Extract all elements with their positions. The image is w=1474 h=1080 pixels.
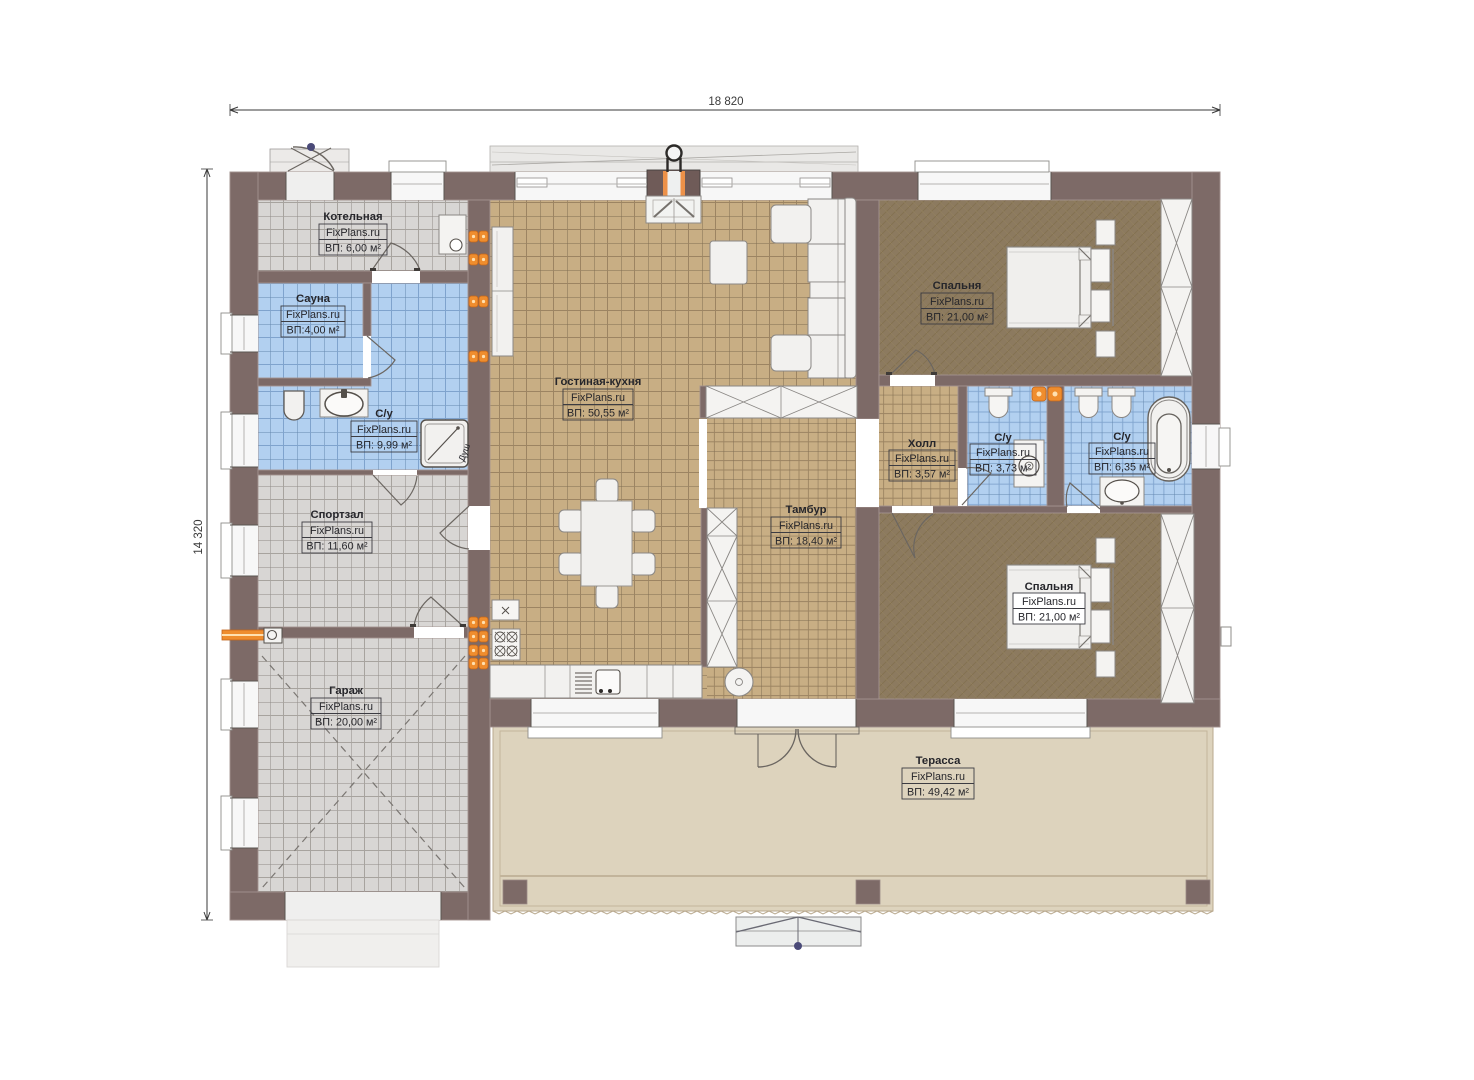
svg-text:FixPlans.ru: FixPlans.ru [895,453,949,465]
svg-text:ВП: 9,99 м²: ВП: 9,99 м² [356,440,412,452]
svg-text:18 820: 18 820 [708,96,743,108]
svg-text:Гостиная-кухня: Гостиная-кухня [555,376,642,388]
svg-text:FixPlans.ru: FixPlans.ru [976,447,1030,459]
svg-text:Гараж: Гараж [329,685,364,697]
svg-text:Спальня: Спальня [933,280,982,292]
svg-text:Холл: Холл [908,438,936,450]
svg-text:Тамбур: Тамбур [786,504,827,516]
svg-text:Спальня: Спальня [1025,581,1074,593]
svg-text:FixPlans.ru: FixPlans.ru [930,296,984,308]
svg-text:ВП: 18,40 м²: ВП: 18,40 м² [775,536,837,548]
svg-text:ВП: 11,60 м²: ВП: 11,60 м² [306,541,368,553]
svg-text:FixPlans.ru: FixPlans.ru [1022,596,1076,608]
svg-text:14 320: 14 320 [193,519,205,554]
svg-text:FixPlans.ru: FixPlans.ru [357,424,411,436]
svg-text:ВП: 49,42 м²: ВП: 49,42 м² [907,787,969,799]
svg-text:С/у: С/у [1113,431,1131,443]
svg-text:FixPlans.ru: FixPlans.ru [1095,446,1149,458]
svg-text:Спортзал: Спортзал [310,509,363,521]
svg-text:FixPlans.ru: FixPlans.ru [326,227,380,239]
svg-text:ВП: 3,57 м²: ВП: 3,57 м² [894,469,950,481]
svg-text:FixPlans.ru: FixPlans.ru [911,771,965,783]
svg-text:FixPlans.ru: FixPlans.ru [779,520,833,532]
svg-text:FixPlans.ru: FixPlans.ru [571,392,625,404]
svg-text:ВП: 50,55 м²: ВП: 50,55 м² [567,408,629,420]
svg-text:Терасса: Терасса [916,755,962,767]
svg-text:ВП: 6,00 м²: ВП: 6,00 м² [325,243,381,255]
svg-text:ВП: 3,73 м²: ВП: 3,73 м² [975,463,1031,475]
svg-text:ВП:4,00 м²: ВП:4,00 м² [287,325,340,337]
svg-text:FixPlans.ru: FixPlans.ru [310,525,364,537]
svg-text:Сауна: Сауна [296,293,331,305]
svg-text:FixPlans.ru: FixPlans.ru [286,309,340,321]
svg-text:FixPlans.ru: FixPlans.ru [319,701,373,713]
svg-text:С/у: С/у [994,432,1012,444]
svg-text:Котельная: Котельная [323,211,382,223]
svg-text:ВП: 20,00 м²: ВП: 20,00 м² [315,717,377,729]
svg-text:ВП: 21,00 м²: ВП: 21,00 м² [1018,612,1080,624]
svg-text:ВП: 21,00 м²: ВП: 21,00 м² [926,312,988,324]
svg-text:ВП: 6,35 м²: ВП: 6,35 м² [1094,462,1150,474]
svg-text:С/у: С/у [375,408,393,420]
